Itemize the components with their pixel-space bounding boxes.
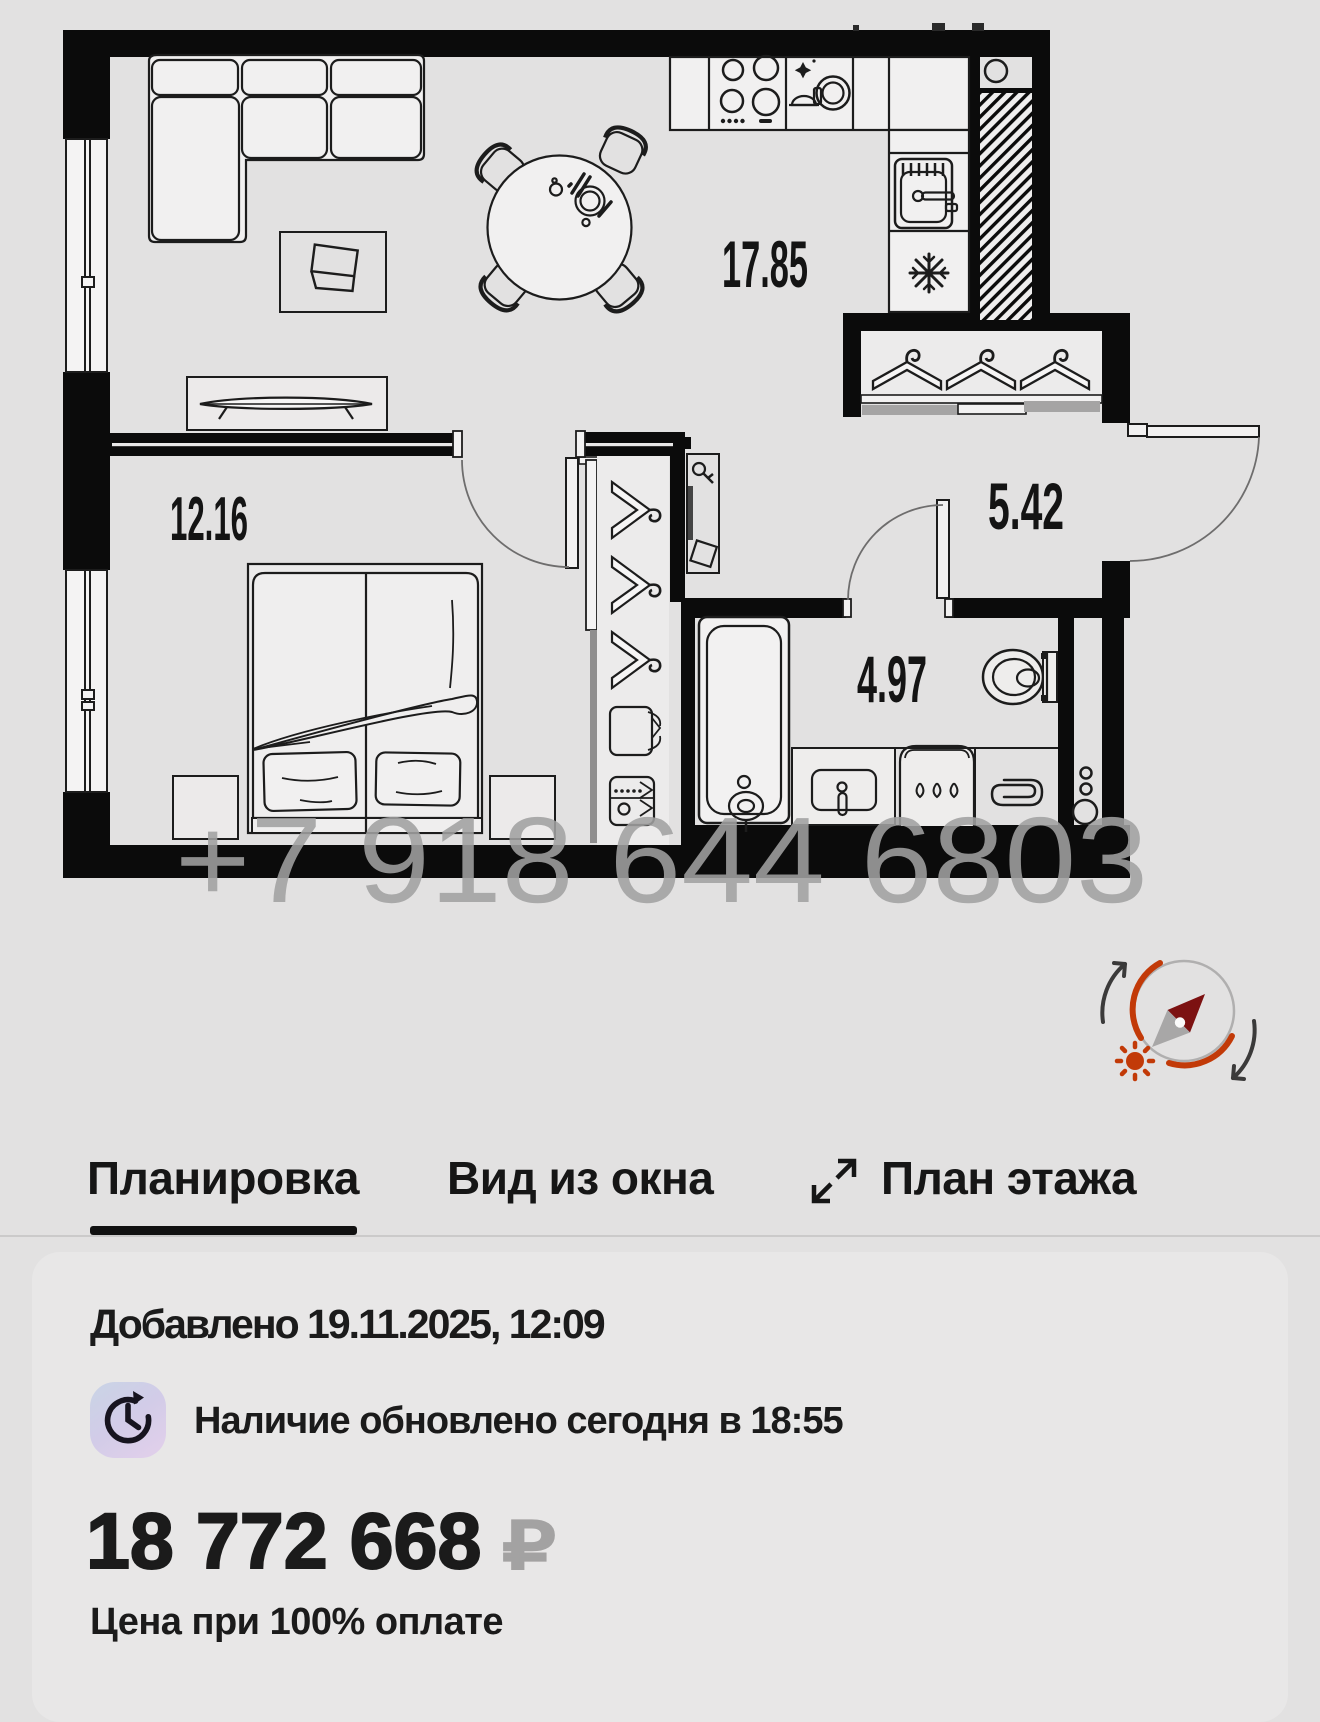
svg-text:5.42: 5.42 (988, 469, 1064, 543)
svg-text:+7 918 644 6803: +7 918 644 6803 (175, 792, 1148, 928)
svg-text:12.16: 12.16 (170, 485, 248, 554)
svg-text:17.85: 17.85 (722, 227, 808, 301)
svg-text:4.97: 4.97 (857, 642, 927, 716)
